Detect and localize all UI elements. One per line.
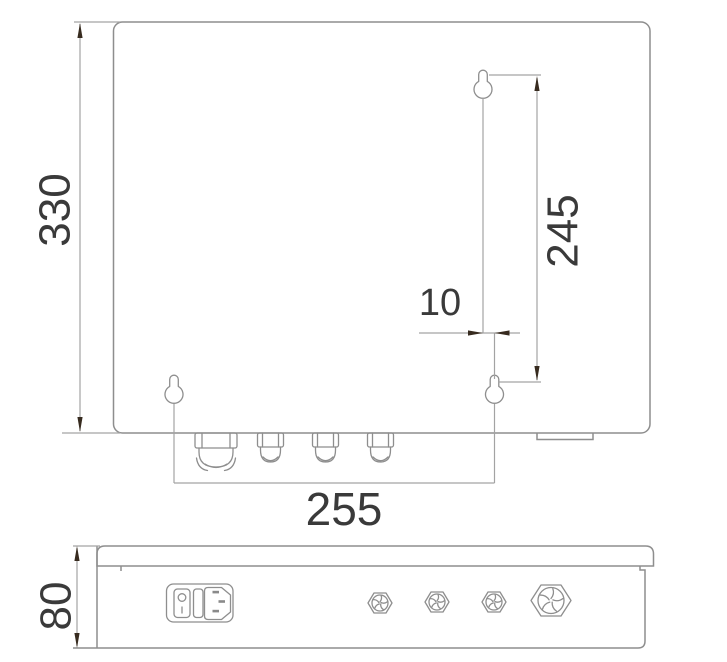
fan-blade-icon [542,601,550,611]
dimension-80: 80 [32,546,101,648]
dim-label-245: 245 [539,194,588,267]
fan-blade-icon [374,603,379,609]
fan-blade-icon [431,602,436,608]
gland-dome [261,447,281,462]
arrowhead-down [74,633,79,648]
dimension-255: 255 [174,404,495,535]
switch-off-symbol-icon [178,594,186,602]
fan-blade-icon [379,604,384,610]
fan-blade-icon [438,600,444,603]
gland-cap [313,433,339,447]
keyhole-slot-bottom-right [486,375,504,403]
fan-blade-icon [494,595,496,601]
fan-blade-icon [553,597,563,602]
dim-label-80: 80 [32,582,81,631]
fan-blade-icon [540,594,550,599]
cable-gland-small-1 [258,433,284,462]
side-view-lid [97,546,654,566]
arrowhead-down [534,366,539,381]
gland-bottom-arc [205,464,227,468]
enclosure-dimension-drawing: 330 245 10 255 [0,0,727,662]
dim-label-10: 10 [419,282,461,324]
fan-blade-icon [551,589,553,599]
fuse-holder [194,589,204,618]
fan-blade-icon [436,603,441,609]
cable-gland-large [195,433,237,471]
fan-blade-icon [380,596,382,602]
side-view-body [73,567,645,649]
inlet-pin [213,591,220,594]
fan-blade-icon [550,602,558,612]
side-view: 80 [32,546,654,648]
gland-end-2 [425,592,449,612]
fan-blade-icon [488,602,493,608]
inlet-pin [219,600,226,603]
fan-blade-icon [381,601,387,604]
power-entry-module [167,584,234,622]
gland-cap [258,433,284,447]
gland-dome [371,447,391,462]
dimension-330: 330 [31,22,121,433]
inlet-pin [213,610,220,613]
gland-dome [199,448,233,467]
dim-label-330: 330 [31,173,80,246]
fan-blade-icon [430,598,436,601]
arrowhead-up [77,23,82,38]
arrowhead-right [468,330,483,335]
arrowhead-up [534,76,539,91]
bottom-edge-tab [537,433,593,440]
cable-gland-small-2 [313,433,339,462]
arrowhead-down [77,417,82,432]
fan-blade-icon [437,595,439,601]
fan-blade-icon [373,599,379,602]
gland-cap [368,433,394,447]
gland-end-1 [368,593,392,613]
front-view: 330 245 10 255 [31,22,651,535]
gland-cap [195,433,237,448]
gland-end-3 [482,592,506,612]
gland-dome [316,447,336,462]
keyhole-slot-bottom-left [165,375,183,403]
fan-blade-icon [493,603,498,609]
hex-nut-icon [531,585,571,616]
dimension-10: 10 [419,98,520,379]
arrowhead-left [495,330,510,335]
gland-end-large [531,585,571,616]
dimension-245: 245 [489,75,588,382]
fan-blade-icon [495,600,501,603]
cable-gland-small-3 [368,433,394,462]
technical-drawing-canvas: 330 245 10 255 [0,0,727,662]
arrowhead-up [74,546,79,561]
dim-label-255: 255 [306,483,383,535]
fan-blade-icon [487,598,493,601]
